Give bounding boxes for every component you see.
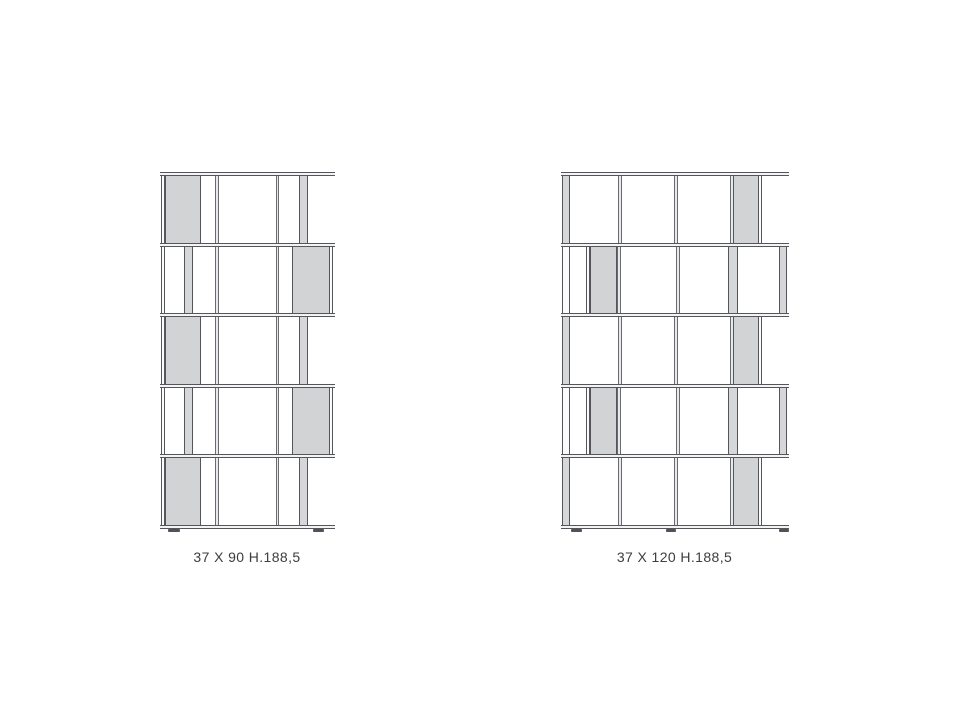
back-panel bbox=[590, 386, 617, 455]
side-edge bbox=[161, 387, 165, 454]
vertical-divider bbox=[215, 246, 219, 313]
vertical-divider bbox=[617, 387, 621, 454]
vertical-divider bbox=[215, 457, 219, 525]
vertical-divider bbox=[674, 457, 678, 525]
back-panel bbox=[733, 315, 759, 385]
back-panel bbox=[165, 456, 201, 526]
side-post bbox=[779, 246, 787, 313]
foot bbox=[666, 529, 676, 532]
vertical-divider bbox=[618, 175, 622, 243]
side-post bbox=[728, 246, 738, 313]
vertical-divider bbox=[276, 246, 279, 313]
vertical-divider bbox=[674, 316, 678, 384]
side-post bbox=[184, 387, 193, 454]
side-post bbox=[562, 457, 570, 525]
side-post bbox=[299, 175, 308, 243]
vertical-divider bbox=[676, 387, 680, 454]
shelf-slab bbox=[160, 313, 335, 317]
foot bbox=[779, 529, 789, 532]
side-post bbox=[562, 316, 570, 384]
shelf-slab bbox=[160, 454, 335, 458]
dimension-label: 37 X 90 H.188,5 bbox=[141, 549, 353, 565]
side-post bbox=[728, 387, 738, 454]
shelf-slab bbox=[561, 384, 789, 388]
foot bbox=[571, 529, 582, 532]
vertical-divider bbox=[215, 387, 219, 454]
shelf-slab bbox=[160, 384, 335, 388]
vertical-divider bbox=[276, 175, 279, 243]
side-post bbox=[299, 316, 308, 384]
shelf-slab bbox=[160, 172, 335, 176]
side-post bbox=[184, 246, 193, 313]
shelf-slab bbox=[561, 454, 789, 458]
side-edge bbox=[161, 246, 165, 313]
back-panel bbox=[590, 245, 617, 314]
vertical-divider bbox=[215, 175, 219, 243]
foot bbox=[313, 529, 324, 532]
shelf-slab bbox=[160, 243, 335, 247]
side-post bbox=[299, 457, 308, 525]
back-panel bbox=[165, 174, 201, 244]
bookcase-37x90: 37 X 90 H.188,5 bbox=[161, 172, 333, 528]
vertical-divider bbox=[276, 457, 279, 525]
side-post bbox=[562, 175, 570, 243]
side-edge bbox=[562, 246, 570, 313]
shelf-slab bbox=[561, 172, 789, 176]
shelf-slab bbox=[561, 243, 789, 247]
vertical-divider bbox=[618, 457, 622, 525]
vertical-divider bbox=[676, 246, 680, 313]
back-panel bbox=[292, 386, 330, 455]
back-panel bbox=[733, 174, 759, 244]
side-post bbox=[779, 387, 787, 454]
vertical-divider bbox=[215, 316, 219, 384]
product-diagram: 37 X 90 H.188,537 X 120 H.188,5 bbox=[0, 0, 970, 728]
back-panel bbox=[165, 315, 201, 385]
back-panel bbox=[733, 456, 759, 526]
side-edge bbox=[562, 387, 570, 454]
vertical-divider bbox=[276, 316, 279, 384]
bookcase-37x120: 37 X 120 H.188,5 bbox=[562, 172, 787, 528]
back-panel bbox=[292, 245, 330, 314]
vertical-divider bbox=[617, 246, 621, 313]
shelf-slab bbox=[561, 313, 789, 317]
foot bbox=[168, 529, 180, 532]
dimension-label: 37 X 120 H.188,5 bbox=[542, 549, 807, 565]
vertical-divider bbox=[276, 387, 279, 454]
vertical-divider bbox=[674, 175, 678, 243]
vertical-divider bbox=[618, 316, 622, 384]
shelf-slab bbox=[160, 525, 335, 529]
